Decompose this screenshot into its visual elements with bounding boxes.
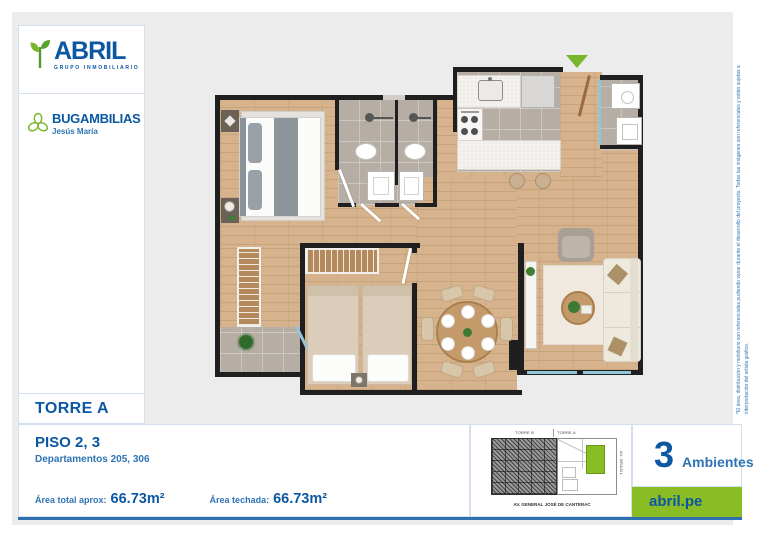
nightstand — [221, 110, 239, 132]
sitemap-tower-a-footprint — [557, 438, 617, 495]
plate — [481, 337, 495, 351]
rooms-count: 3 — [654, 435, 674, 475]
rooms-label: Ambientes — [682, 454, 754, 470]
plate — [441, 337, 455, 351]
blanket — [274, 118, 298, 216]
project-box: BUGAMBILIAS Jesús María — [18, 93, 145, 394]
brand-logo: ABRIL GRUPO INMOBILIARIO — [29, 39, 139, 71]
hall-closet — [237, 247, 261, 327]
patio-plant — [239, 335, 253, 349]
sitemap-room — [562, 479, 578, 491]
tower-box: TORRE A — [18, 393, 145, 424]
wall — [215, 95, 220, 377]
laundry-glass-wall — [598, 80, 601, 145]
wall — [300, 390, 522, 395]
washer-door — [621, 91, 634, 104]
plate — [461, 346, 475, 360]
kitchen-sink — [478, 80, 503, 101]
area-covered-value: 66.73m² — [273, 491, 327, 507]
pillow — [312, 354, 356, 382]
project-name: BUGAMBILIAS — [52, 111, 140, 126]
throw-pillow — [608, 337, 628, 357]
headboard — [240, 118, 246, 216]
wall — [509, 340, 524, 370]
coffee-table — [561, 291, 595, 325]
plant — [229, 215, 235, 221]
lamp — [355, 376, 363, 384]
kitchen-bar — [457, 140, 561, 170]
wall — [453, 67, 563, 72]
sitemap-box: TORRE B TORRE A AV. BRASIL AV. GENERAL J… — [470, 424, 632, 517]
burner — [471, 116, 478, 123]
dining-chair — [421, 317, 434, 341]
decor — [224, 115, 235, 126]
toilet — [404, 143, 426, 160]
wall — [600, 145, 643, 149]
toilet — [355, 143, 377, 160]
plant — [568, 301, 580, 313]
plate — [441, 314, 455, 328]
wall — [412, 243, 417, 253]
armchair-seat — [562, 236, 590, 258]
vanity-sink — [399, 171, 424, 201]
living-window — [583, 371, 631, 374]
nightstand — [351, 373, 367, 387]
dining-chair — [500, 317, 513, 341]
wall — [412, 283, 417, 390]
sitemap-room — [562, 467, 576, 478]
basin — [373, 177, 389, 195]
throw-pillow — [607, 264, 628, 285]
wall — [600, 75, 643, 80]
plate — [481, 314, 495, 328]
wall — [335, 95, 339, 170]
entry-arrow-icon — [566, 55, 588, 68]
bathroom-window — [383, 95, 405, 100]
dryer — [616, 117, 642, 145]
basin — [404, 177, 419, 195]
kitchen-counter — [457, 75, 521, 108]
entry-floor — [560, 72, 602, 177]
blanket-fold — [363, 286, 411, 296]
double-bed — [239, 117, 321, 217]
shower-arm — [373, 117, 393, 119]
area-total-value: 66.73m² — [111, 491, 165, 507]
sitemap-highlight-unit — [586, 445, 605, 474]
area-total-label: Área total aprox: — [35, 495, 107, 505]
living-window — [527, 371, 577, 374]
shower-arm — [417, 117, 431, 119]
plate — [461, 305, 475, 319]
departments: Departamentos 205, 306 — [35, 454, 150, 465]
floor-plan — [215, 55, 647, 423]
armchair — [558, 228, 594, 262]
area-covered-label: Área techada: — [210, 495, 270, 505]
brand-name: ABRIL — [54, 39, 139, 64]
sofa-back — [630, 259, 638, 361]
single-bed — [307, 285, 359, 385]
bar-stool — [509, 173, 525, 189]
website-box: abril.pe — [632, 487, 742, 517]
stove — [457, 108, 483, 141]
project-logo: BUGAMBILIAS Jesús María — [27, 111, 140, 136]
brand-tagline: GRUPO INMOBILIARIO — [54, 65, 139, 71]
rooms-box: 3 Ambientes — [632, 424, 742, 487]
pillow — [248, 123, 262, 163]
plant — [526, 267, 535, 276]
website-link: abril.pe — [649, 493, 702, 510]
nightstand — [221, 198, 239, 223]
vanity-sink — [367, 171, 395, 201]
unit-info-box: PISO 2, 3 Departamentos 205, 306 Área to… — [18, 424, 470, 517]
bottom-rule — [18, 517, 742, 520]
burner — [461, 128, 468, 135]
burner — [461, 116, 468, 123]
sofa — [603, 258, 641, 362]
project-district: Jesús María — [52, 127, 140, 136]
bedroom2-wardrobe — [305, 248, 379, 274]
pillow — [248, 170, 262, 210]
sitemap-tower-left-label: TORRE B — [515, 430, 534, 435]
dryer-door — [622, 124, 638, 140]
areas-row: Área total aprox: 66.73m² Área techada: … — [35, 491, 327, 507]
pillow — [367, 354, 409, 382]
wall — [415, 203, 435, 207]
wall — [395, 95, 398, 185]
disclaimer-text: *El área, distribución y mobiliario son … — [735, 58, 751, 414]
sitemap-street-bottom-label: AV. GENERAL JOSÉ DE CANTERAC — [479, 502, 625, 507]
floor-title: PISO 2, 3 — [35, 434, 100, 451]
stove-knobs — [461, 111, 479, 113]
sitemap-street-right-label: AV. BRASIL — [619, 451, 624, 475]
burner — [471, 128, 478, 135]
sitemap-tower-b-footprint — [491, 438, 557, 495]
wall — [433, 95, 437, 207]
centerpiece — [463, 328, 472, 337]
faucet — [488, 77, 492, 81]
single-bed — [362, 285, 412, 385]
book — [581, 305, 592, 314]
wall — [215, 372, 305, 377]
brand-box: ABRIL GRUPO INMOBILIARIO — [18, 25, 145, 94]
sitemap-line — [582, 439, 583, 469]
flower-icon — [27, 112, 49, 136]
hall-floor — [220, 245, 305, 330]
fridge — [521, 75, 555, 108]
wall — [375, 203, 399, 207]
blanket-fold — [308, 286, 358, 296]
bar-stool — [535, 173, 551, 189]
tower-label: TORRE A — [35, 400, 109, 418]
washer — [611, 83, 640, 109]
sitemap-tower-right-label: TORRE A — [557, 430, 576, 435]
leaf-icon — [29, 39, 51, 69]
patio-floor — [220, 327, 300, 375]
lamp — [224, 201, 235, 212]
sitemap-tick — [553, 429, 554, 437]
